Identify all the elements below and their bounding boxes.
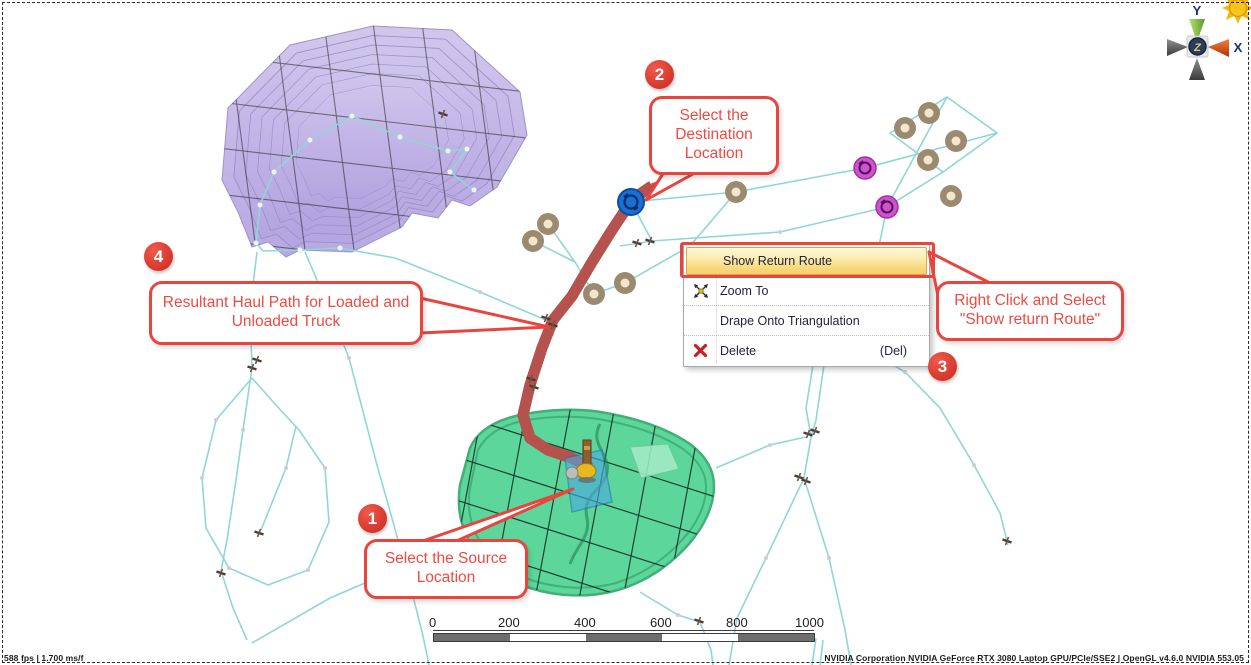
delete-icon [684, 343, 717, 358]
minus-y-axis-cone [1189, 58, 1205, 80]
loading-nodes[interactable] [854, 157, 898, 218]
scale-bar-line [433, 630, 814, 631]
callout-right-click: Right Click and Select "Show return Rout… [936, 281, 1124, 341]
zoom-extents-icon [684, 283, 717, 299]
menu-item-label: Zoom To [717, 284, 768, 298]
step-badge-2: 2 [645, 60, 674, 89]
menu-item-zoom-to[interactable]: Zoom To [684, 276, 929, 305]
axis-z-label: Z [1193, 42, 1202, 54]
scale-tick: 800 [726, 615, 748, 630]
axis-y-label: Y [1193, 3, 1202, 18]
gpu-status: NVIDIA Corporation NVIDIA GeForce RTX 30… [824, 653, 1244, 663]
scale-tick: 1000 [795, 615, 824, 630]
menu-item-label: Drape Onto Triangulation [717, 314, 860, 328]
menu-item-show-return-route[interactable]: Show Return Route [686, 247, 927, 275]
x-axis-cone [1208, 39, 1229, 57]
menu-item-drape-onto-triangulation[interactable]: Drape Onto Triangulation [684, 305, 929, 335]
callout-haul-path: Resultant Haul Path for Loaded and Unloa… [149, 281, 423, 345]
scale-tick: 600 [650, 615, 672, 630]
axis-x-label: X [1234, 40, 1243, 55]
scale-tick: 200 [498, 615, 520, 630]
menu-item-label: Delete [717, 344, 756, 358]
menu-item-label: Show Return Route [720, 254, 832, 268]
step-badge-3: 3 [928, 352, 957, 381]
destination-node[interactable] [618, 189, 644, 215]
fps-status: 588 fps | 1.700 ms/f [4, 653, 84, 663]
application-viewport: Show Return Route Zoom To [0, 0, 1251, 665]
scale-tick: 0 [429, 615, 436, 630]
menu-item-shortcut: (Del) [880, 344, 929, 358]
scale-bar: 0 200 400 600 800 1000 [423, 615, 823, 643]
axis-orientation-gizmo[interactable]: Y X Z [1159, 2, 1247, 92]
callout-select-source: Select the Source Location [364, 539, 528, 599]
step-badge-1: 1 [358, 504, 387, 533]
scale-tick: 400 [574, 615, 596, 630]
menu-item-delete[interactable]: Delete (Del) [684, 335, 929, 365]
waste-dump-region[interactable] [210, 15, 535, 277]
context-menu: Show Return Route Zoom To [683, 244, 930, 367]
step-badge-4: 4 [144, 242, 173, 271]
scale-bar-segments [433, 633, 815, 642]
minus-x-axis-cone [1167, 39, 1188, 56]
callout-select-destination: Select the Destination Location [649, 96, 779, 175]
